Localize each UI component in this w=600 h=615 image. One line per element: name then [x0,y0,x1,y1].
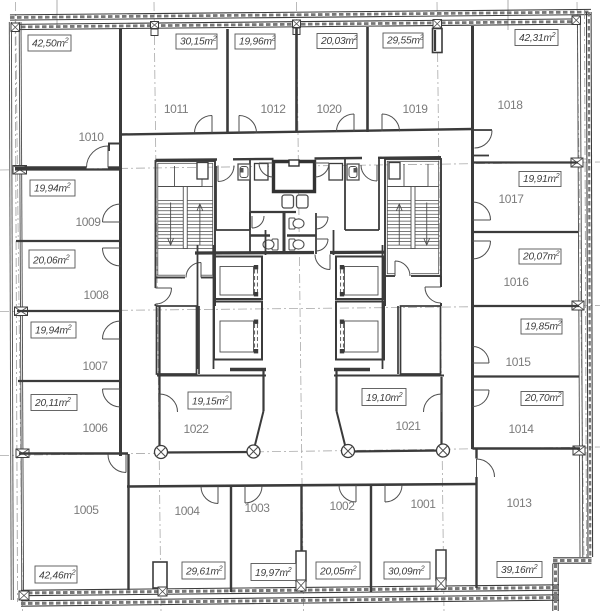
svg-text:29,61m2: 29,61m2 [185,566,223,578]
svg-text:39,16m2: 39,16m2 [501,564,538,576]
svg-text:1009: 1009 [75,215,101,229]
svg-text:1008: 1008 [83,288,109,302]
svg-text:20,70m2: 20,70m2 [524,392,562,404]
svg-text:42,31m2: 42,31m2 [519,32,556,44]
svg-text:19,97m2: 19,97m2 [255,567,292,579]
svg-text:19,94m2: 19,94m2 [35,325,72,337]
svg-text:1005: 1005 [73,503,99,517]
svg-text:1020: 1020 [316,102,342,116]
svg-text:19,15m2: 19,15m2 [192,396,229,408]
svg-text:1019: 1019 [402,102,428,116]
svg-text:1003: 1003 [244,501,270,515]
svg-text:19,91m2: 19,91m2 [523,173,560,185]
svg-text:1014: 1014 [508,422,534,436]
svg-text:1013: 1013 [506,496,532,510]
svg-text:30,15m2: 30,15m2 [180,36,217,48]
svg-text:1021: 1021 [395,419,421,433]
svg-text:1011: 1011 [164,102,189,116]
svg-text:20,03m2: 20,03m2 [320,35,358,47]
svg-text:1010: 1010 [78,130,104,144]
svg-text:1018: 1018 [497,98,523,112]
svg-text:19,94m2: 19,94m2 [34,183,71,195]
svg-text:30,09m2: 30,09m2 [388,566,425,578]
svg-text:42,50m2: 42,50m2 [32,38,69,50]
svg-text:1015: 1015 [505,355,531,369]
svg-text:20,07m2: 20,07m2 [522,251,560,263]
svg-text:1006: 1006 [82,421,108,435]
svg-text:1007: 1007 [82,359,108,373]
svg-text:19,85m2: 19,85m2 [525,321,562,333]
svg-text:20,05m2: 20,05m2 [319,566,357,578]
svg-text:20,11m2: 20,11m2 [34,397,71,409]
svg-text:19,96m2: 19,96m2 [239,36,276,48]
svg-text:1002: 1002 [329,499,355,513]
svg-text:1022: 1022 [183,422,209,436]
svg-text:1017: 1017 [498,192,524,206]
svg-text:1004: 1004 [174,504,200,518]
svg-text:1001: 1001 [410,497,436,511]
svg-text:1012: 1012 [260,102,286,116]
svg-text:20,06m2: 20,06m2 [32,255,70,267]
svg-text:42,46m2: 42,46m2 [39,570,76,582]
svg-text:19,10m2: 19,10m2 [366,392,403,404]
svg-text:1016: 1016 [503,275,529,289]
svg-text:29,55m2: 29,55m2 [386,35,424,47]
